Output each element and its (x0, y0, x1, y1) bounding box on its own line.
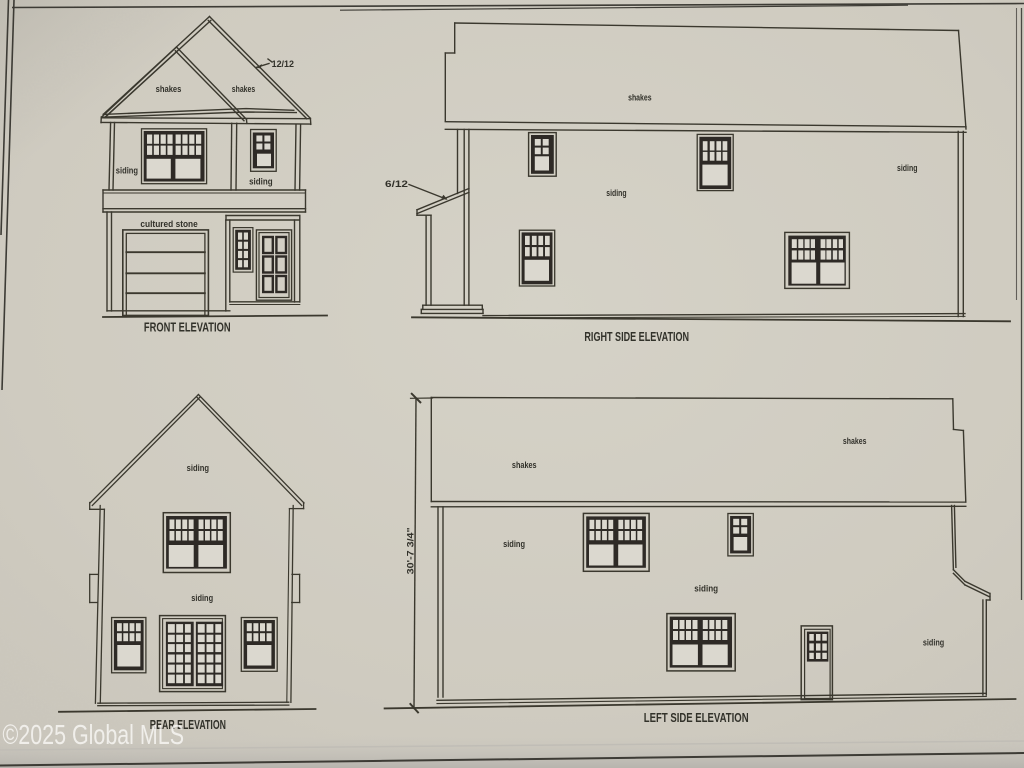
svg-text:shakes: shakes (628, 92, 652, 102)
svg-text:siding: siding (503, 539, 525, 549)
svg-text:siding: siding (187, 463, 209, 473)
svg-text:siding: siding (249, 176, 273, 186)
svg-text:shakes: shakes (156, 84, 182, 94)
svg-text:siding: siding (191, 593, 213, 603)
svg-text:RIGHT SIDE ELEVATION: RIGHT SIDE ELEVATION (584, 329, 689, 344)
svg-text:6/12: 6/12 (385, 179, 408, 189)
svg-text:cultured stone: cultured stone (140, 219, 197, 229)
svg-text:LEFT SIDE ELEVATION: LEFT SIDE ELEVATION (644, 710, 749, 725)
svg-text:shakes: shakes (512, 460, 537, 470)
svg-text:siding: siding (897, 163, 918, 173)
svg-text:FRONT ELEVATION: FRONT ELEVATION (144, 319, 231, 334)
svg-text:shakes: shakes (232, 84, 255, 94)
svg-text:siding: siding (606, 188, 626, 198)
svg-text:©2025 Global MLS: ©2025 Global MLS (3, 719, 185, 750)
svg-text:siding: siding (923, 637, 944, 647)
svg-text:shakes: shakes (843, 436, 867, 446)
svg-text:30'-7 3/4": 30'-7 3/4" (406, 527, 416, 574)
svg-text:siding: siding (694, 584, 718, 594)
svg-text:siding: siding (116, 165, 138, 175)
svg-text:12/12: 12/12 (272, 59, 294, 69)
